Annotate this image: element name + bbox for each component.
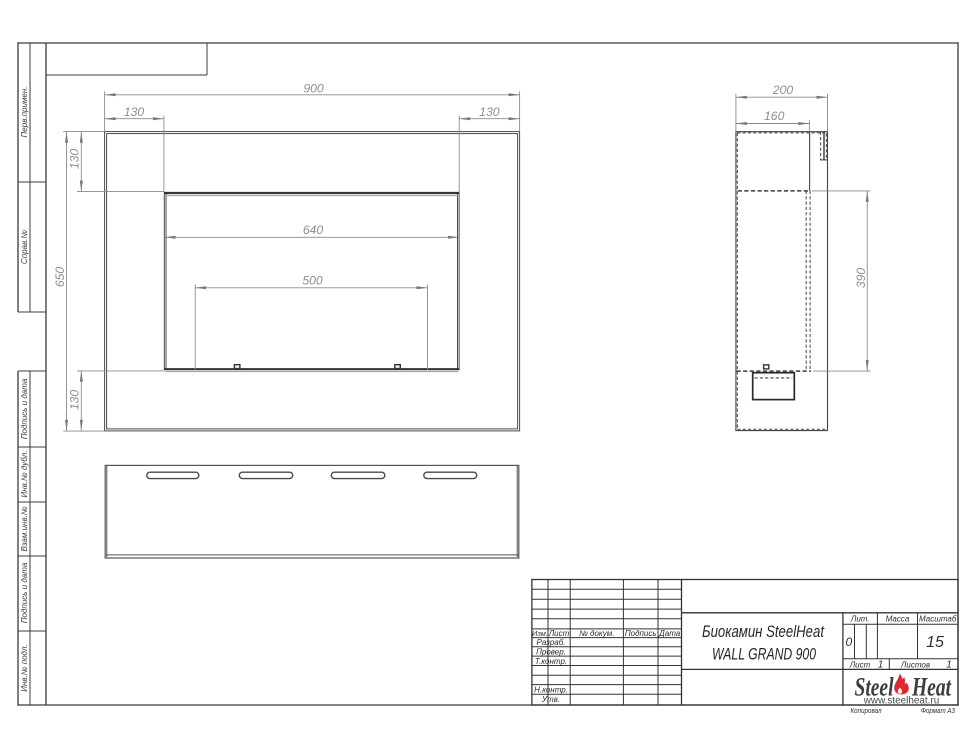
svg-text:Перв.примен.: Перв.примен. <box>20 87 29 138</box>
svg-text:130: 130 <box>68 149 82 170</box>
svg-text:Масштаб: Масштаб <box>919 615 957 624</box>
svg-text:Листов: Листов <box>900 660 930 669</box>
svg-text:WALL GRAND 900: WALL GRAND 900 <box>712 644 816 663</box>
svg-text:900: 900 <box>303 81 324 95</box>
svg-text:Инв.№ дубл.: Инв.№ дубл. <box>20 451 29 498</box>
svg-text:15: 15 <box>926 634 944 651</box>
svg-text:1: 1 <box>878 659 884 670</box>
svg-text:Изм.: Изм. <box>532 629 548 638</box>
svg-text:650: 650 <box>53 267 67 288</box>
svg-text:0: 0 <box>845 635 852 649</box>
svg-text:200: 200 <box>772 83 794 97</box>
svg-text:Формат А3: Формат А3 <box>921 706 956 715</box>
svg-text:Т.контр.: Т.контр. <box>535 657 567 666</box>
svg-text:130: 130 <box>68 390 82 411</box>
svg-text:1: 1 <box>946 659 952 670</box>
svg-text:130: 130 <box>479 105 500 119</box>
svg-text:500: 500 <box>302 273 323 287</box>
svg-text:www.steelheat.ru: www.steelheat.ru <box>863 695 940 707</box>
svg-text:Провер.: Провер. <box>536 648 566 657</box>
svg-text:Подпись: Подпись <box>625 629 657 638</box>
svg-text:Н.контр.: Н.контр. <box>534 686 568 695</box>
svg-text:160: 160 <box>764 109 785 123</box>
svg-text:Биокамин SteelHeat: Биокамин SteelHeat <box>702 622 825 641</box>
svg-text:Лист: Лист <box>548 629 570 638</box>
svg-text:Дата: Дата <box>658 629 681 638</box>
svg-text:390: 390 <box>854 268 868 289</box>
svg-text:Инв.№ подл.: Инв.№ подл. <box>20 644 29 691</box>
svg-text:Лист: Лист <box>849 660 871 669</box>
svg-text:640: 640 <box>303 223 324 237</box>
svg-text:Подпись и дата: Подпись и дата <box>20 378 29 439</box>
svg-text:Лит.: Лит. <box>850 615 870 624</box>
svg-text:Копировал: Копировал <box>851 706 883 715</box>
svg-text:Взам.инв.№: Взам.инв.№ <box>20 506 29 551</box>
svg-text:130: 130 <box>124 105 145 119</box>
svg-text:Масса: Масса <box>886 615 910 624</box>
svg-text:Разраб.: Разраб. <box>537 638 566 647</box>
svg-text:Подпись и дата: Подпись и дата <box>20 562 29 623</box>
svg-text:№ докум.: № докум. <box>579 629 614 638</box>
svg-text:Справ.№: Справ.№ <box>20 230 29 264</box>
svg-text:Утв.: Утв. <box>541 695 560 704</box>
